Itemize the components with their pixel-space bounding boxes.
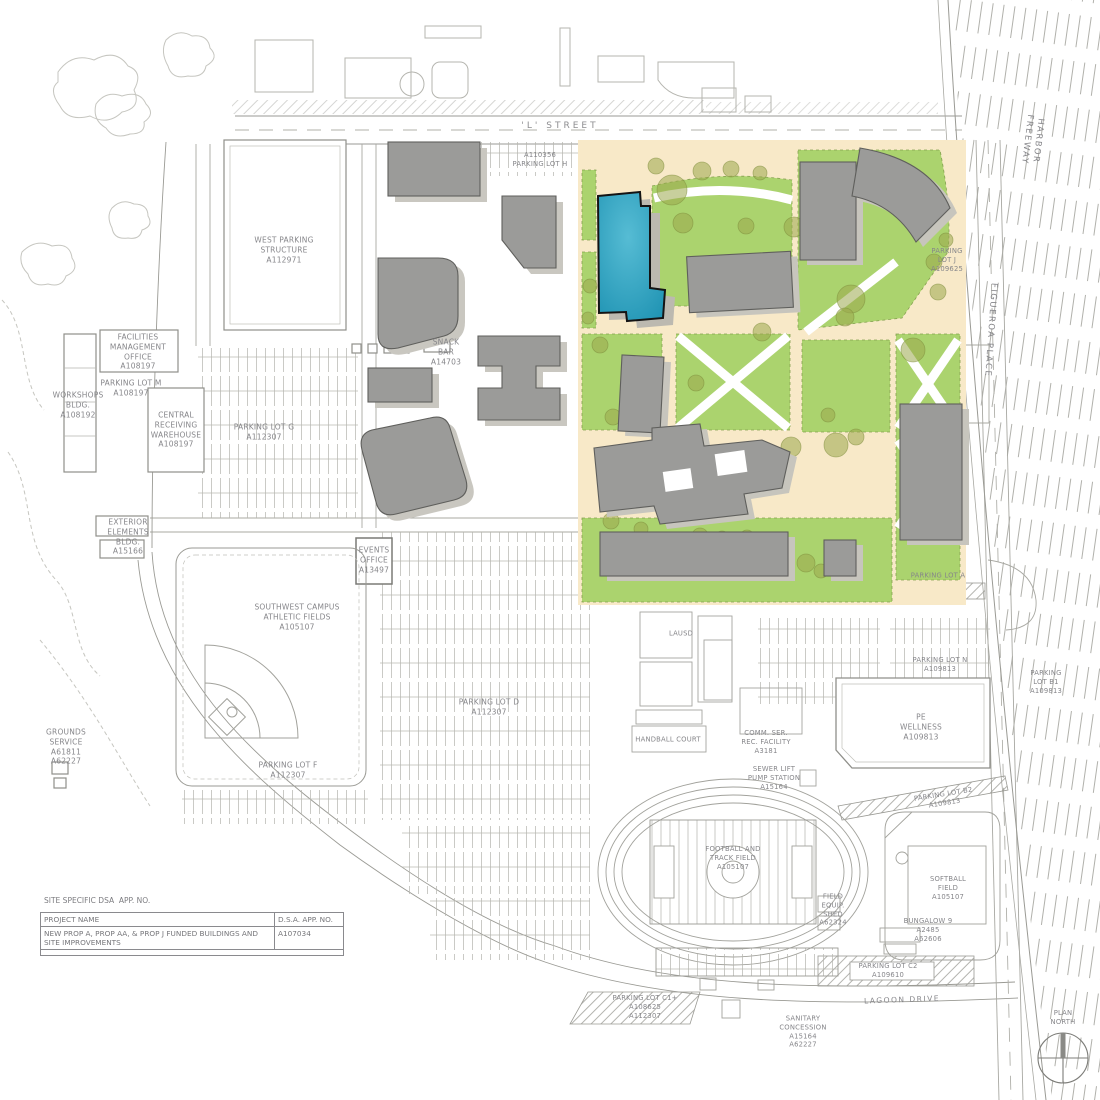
title-col-project-name: PROJECT NAME	[41, 913, 274, 926]
title-dsa-value: A107034	[274, 927, 343, 949]
title-block-spacer	[41, 949, 343, 955]
l-street-road	[232, 100, 962, 144]
sanitary-concession-building	[722, 1000, 740, 1018]
pe-wellness-building	[836, 678, 990, 768]
sewer-lift-station	[800, 770, 816, 786]
existing-gray-buildings	[361, 142, 567, 521]
compass-icon	[1038, 1033, 1088, 1083]
site-plan-sheet: 'L' STREET A110356 PARKING LOT H WEST PA…	[0, 0, 1100, 1100]
baseball-diamond	[205, 645, 298, 738]
offsite-structures-north	[255, 26, 771, 112]
handball-court	[632, 726, 706, 752]
softball-field	[818, 812, 1000, 960]
athletic-fields	[176, 548, 366, 786]
title-col-dsa-no: D.S.A. APP. NO.	[274, 913, 343, 926]
west-parking-structure	[224, 140, 346, 330]
title-block-table: PROJECT NAME D.S.A. APP. NO. NEW PROP A,…	[40, 912, 344, 956]
campus-core	[578, 140, 969, 605]
title-project-value: NEW PROP A, PROP AA, & PROP J FUNDED BUI…	[41, 927, 274, 949]
